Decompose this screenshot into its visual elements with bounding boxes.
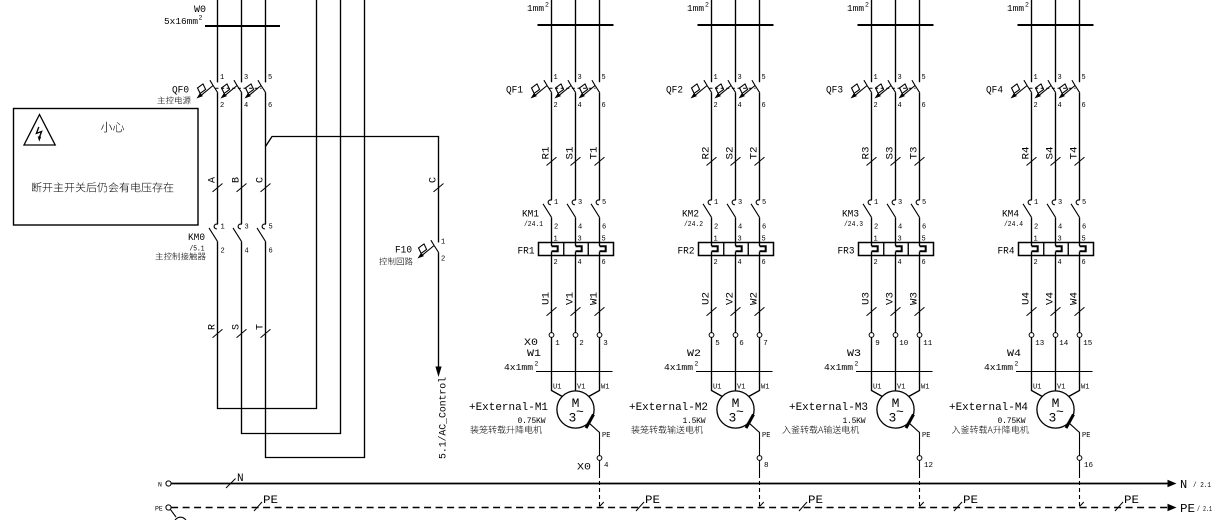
svg-text:V1: V1 [897,384,905,392]
svg-text:1: 1 [874,235,878,243]
svg-text:PE: PE [1124,495,1139,507]
svg-text:4x1mm: 4x1mm [824,362,853,373]
svg-text:PE: PE [1082,432,1090,440]
svg-text:2: 2 [1034,102,1038,110]
svg-text:1: 1 [441,239,445,247]
svg-text:3: 3 [1058,74,1062,82]
svg-text:4: 4 [578,223,582,231]
svg-text:+External-M2: +External-M2 [629,402,708,414]
svg-text:FR1: FR1 [518,246,535,258]
svg-text:1: 1 [1034,199,1038,207]
svg-text:2: 2 [579,340,584,348]
svg-text:QF1: QF1 [506,85,523,97]
svg-text:1: 1 [714,199,718,207]
svg-text:4x1mm: 4x1mm [504,362,533,373]
svg-text:1mm: 1mm [1007,3,1024,14]
svg-text:12: 12 [924,462,933,470]
svg-text:PE: PE [963,495,978,507]
svg-text:5x16mm: 5x16mm [164,16,198,27]
svg-text:5: 5 [762,235,766,243]
svg-text:5: 5 [762,199,766,207]
svg-text:7: 7 [763,340,768,348]
svg-text:3: 3 [738,235,742,243]
svg-text:3: 3 [738,199,742,207]
svg-text:4: 4 [1058,259,1062,267]
svg-text:QF3: QF3 [826,85,843,97]
svg-text:3: 3 [578,74,582,82]
svg-text:5: 5 [922,199,926,207]
svg-text:V3: V3 [886,292,897,305]
svg-text:2: 2 [1034,223,1038,231]
svg-text:W3: W3 [847,349,861,360]
svg-text:5: 5 [269,224,273,232]
svg-text:3: 3 [245,224,249,232]
svg-text:U2: U2 [702,292,713,305]
svg-text:2: 2 [221,248,225,256]
svg-text:~: ~ [576,405,584,420]
svg-text:4: 4 [244,102,248,110]
svg-text:U4: U4 [1022,292,1033,305]
svg-text:W1: W1 [921,384,929,392]
svg-text:2: 2 [545,2,549,9]
svg-text:10: 10 [899,340,909,348]
svg-text:N: N [158,482,162,489]
svg-text:5: 5 [602,199,606,207]
svg-text:5: 5 [922,74,926,82]
svg-text:N: N [237,473,244,485]
svg-text:R: R [208,324,219,330]
svg-text:4: 4 [1058,102,1062,110]
svg-text:/ 2.1: / 2.1 [1193,482,1211,490]
svg-text:V1: V1 [1057,384,1065,392]
svg-text:+External-M1: +External-M1 [469,402,548,414]
svg-text:6: 6 [602,223,606,231]
svg-text:2: 2 [695,361,699,368]
svg-text:V1: V1 [577,384,585,392]
svg-text:2: 2 [714,259,718,267]
svg-text:2: 2 [865,2,869,9]
svg-text:1: 1 [874,74,878,82]
svg-text:1: 1 [554,199,558,207]
svg-text:6: 6 [762,259,766,267]
svg-text:2: 2 [220,102,224,110]
svg-text:~: ~ [736,405,744,420]
svg-text:X0: X0 [577,463,591,474]
svg-text:KM2: KM2 [682,209,699,221]
svg-text:1mm: 1mm [527,3,544,14]
svg-text:3: 3 [578,235,582,243]
svg-text:6: 6 [739,340,744,348]
svg-text:FR3: FR3 [838,246,855,258]
svg-text:5: 5 [715,340,720,348]
svg-text:2: 2 [1015,361,1019,368]
svg-text:T3: T3 [910,147,921,160]
svg-text:1.5KW: 1.5KW [843,417,866,426]
svg-text:QF0: QF0 [172,85,189,97]
svg-text:11: 11 [923,340,933,348]
svg-text:S1: S1 [566,147,577,160]
svg-text:3: 3 [244,74,248,82]
svg-text:2: 2 [554,259,558,267]
svg-text:V4: V4 [1046,292,1057,305]
svg-text:6: 6 [269,248,273,256]
svg-text:+External-M4: +External-M4 [949,402,1028,414]
svg-text:3: 3 [898,199,902,207]
svg-text:16: 16 [1084,462,1094,470]
svg-text:R3: R3 [862,147,873,160]
svg-text:T4: T4 [1070,147,1081,160]
svg-text:6: 6 [268,102,272,110]
svg-text:W2: W2 [750,292,761,305]
svg-text:1: 1 [555,340,560,348]
svg-text:6: 6 [762,102,766,110]
svg-text:W1: W1 [527,349,541,360]
svg-text:R1: R1 [542,147,553,160]
svg-text:W1: W1 [761,384,769,392]
svg-text:PE: PE [1180,502,1195,516]
svg-text:T1: T1 [590,147,601,160]
svg-text:2: 2 [441,256,445,264]
svg-text:S4: S4 [1046,147,1057,160]
svg-text:T: T [256,324,267,330]
svg-text:1: 1 [554,74,558,82]
svg-text:5: 5 [922,235,926,243]
svg-text:4x1mm: 4x1mm [664,362,693,373]
svg-text:2: 2 [1034,259,1038,267]
svg-text:W1: W1 [1081,384,1089,392]
svg-text:4: 4 [898,102,902,110]
svg-text:S3: S3 [886,147,897,160]
svg-text:PE: PE [645,495,660,507]
svg-text:5.1/AC_Control: 5.1/AC_Control [438,377,450,459]
svg-text:U1: U1 [542,292,553,305]
svg-text:1mm: 1mm [847,3,864,14]
svg-text:PE: PE [922,432,930,440]
svg-text:8: 8 [764,462,769,470]
svg-text:2: 2 [855,361,859,368]
svg-text:1: 1 [554,235,558,243]
svg-text:X0: X0 [524,338,538,349]
svg-text:6: 6 [602,102,606,110]
svg-text:9: 9 [875,340,880,348]
svg-text:3: 3 [603,340,608,348]
svg-text:QF4: QF4 [986,85,1003,97]
svg-text:N: N [1180,478,1187,492]
svg-text:V1: V1 [737,384,745,392]
svg-text:4: 4 [898,223,902,231]
svg-text:KM1: KM1 [522,209,539,221]
svg-text:/5.1: /5.1 [190,246,205,254]
svg-text:6: 6 [922,259,926,267]
svg-text:W4: W4 [1007,349,1021,360]
svg-text:2: 2 [535,361,539,368]
svg-text:6: 6 [762,223,766,231]
svg-text:4: 4 [738,223,742,231]
svg-text:5: 5 [268,74,272,82]
svg-text:1: 1 [714,235,718,243]
svg-text:2: 2 [874,223,878,231]
svg-text:5: 5 [762,74,766,82]
svg-text:W1: W1 [601,384,609,392]
svg-text:4x1mm: 4x1mm [984,362,1013,373]
svg-text:QF2: QF2 [666,85,683,97]
svg-text:W2: W2 [687,349,701,360]
svg-text:C: C [256,177,267,183]
svg-text:W1: W1 [590,292,601,305]
svg-text:1: 1 [1034,74,1038,82]
svg-text:/24.1: /24.1 [524,221,543,229]
svg-text:5: 5 [1082,235,1086,243]
svg-text:2: 2 [705,2,709,9]
svg-text:/24.3: /24.3 [844,221,863,229]
svg-text:1: 1 [220,74,224,82]
svg-text:6: 6 [922,223,926,231]
svg-text:S2: S2 [726,147,737,160]
svg-text:KM4: KM4 [1002,209,1019,221]
svg-text:4: 4 [898,259,902,267]
svg-text:2: 2 [874,259,878,267]
svg-text:V2: V2 [726,292,737,305]
svg-text:1mm: 1mm [687,3,704,14]
svg-text:15: 15 [1083,340,1093,348]
svg-text:2: 2 [554,223,558,231]
svg-text:PE: PE [263,495,278,507]
svg-text:2: 2 [199,15,203,22]
svg-text:~: ~ [896,405,904,420]
svg-text:1: 1 [714,74,718,82]
svg-text:PE: PE [602,432,610,440]
svg-text:KM0: KM0 [188,232,205,244]
svg-text:5: 5 [1082,74,1086,82]
svg-text:4: 4 [604,462,609,470]
svg-text:2: 2 [714,102,718,110]
svg-text:1: 1 [221,224,225,232]
svg-text:/24.2: /24.2 [684,221,703,229]
svg-text:PE: PE [762,432,770,440]
svg-text:0.75KW: 0.75KW [998,417,1026,426]
svg-text:5: 5 [602,74,606,82]
svg-text:5: 5 [602,235,606,243]
svg-text:C: C [429,177,440,183]
svg-text:R4: R4 [1022,147,1033,160]
svg-text:1: 1 [1034,235,1038,243]
svg-text:3: 3 [738,74,742,82]
svg-text:3: 3 [1058,199,1062,207]
svg-text:A: A [208,177,219,183]
svg-text:2: 2 [1025,2,1029,9]
svg-text:T2: T2 [750,147,761,160]
svg-text:2: 2 [554,102,558,110]
svg-text:5: 5 [1082,199,1086,207]
svg-text:U1: U1 [1033,384,1041,392]
svg-text:U1: U1 [713,384,721,392]
svg-text:U3: U3 [862,292,873,305]
svg-text:6: 6 [922,102,926,110]
svg-text:R2: R2 [702,147,713,160]
svg-text:/24.4: /24.4 [1004,221,1023,229]
svg-text:S: S [232,324,243,330]
svg-text:3: 3 [578,199,582,207]
svg-text:~: ~ [1056,405,1064,420]
svg-text:4: 4 [1058,223,1062,231]
svg-text:6: 6 [1082,259,1086,267]
svg-text:13: 13 [1035,340,1045,348]
svg-text:+External-M3: +External-M3 [789,402,868,414]
svg-text:1: 1 [874,199,878,207]
svg-text:4: 4 [578,259,582,267]
svg-text:4: 4 [245,248,249,256]
svg-text:F10: F10 [395,245,412,257]
svg-text:6: 6 [602,259,606,267]
svg-text:FR2: FR2 [678,246,695,258]
svg-text:B: B [232,177,243,183]
svg-text:V1: V1 [566,292,577,305]
svg-text:U1: U1 [553,384,561,392]
svg-text:/ 2.1: / 2.1 [1197,506,1212,514]
svg-text:6: 6 [1082,102,1086,110]
svg-text:1.5KW: 1.5KW [683,417,706,426]
svg-text:6: 6 [1082,223,1086,231]
svg-text:3: 3 [898,74,902,82]
svg-text:PE: PE [808,495,823,507]
svg-text:W4: W4 [1070,292,1081,305]
svg-text:U1: U1 [873,384,881,392]
svg-text:4: 4 [578,102,582,110]
svg-text:KM3: KM3 [842,209,859,221]
svg-text:4: 4 [738,102,742,110]
svg-text:14: 14 [1059,340,1069,348]
svg-text:3: 3 [898,235,902,243]
svg-text:FR4: FR4 [998,246,1015,258]
svg-text:0.75KW: 0.75KW [518,417,546,426]
svg-text:2: 2 [714,223,718,231]
svg-text:W3: W3 [910,292,921,305]
svg-text:3: 3 [1058,235,1062,243]
svg-text:PE: PE [155,506,163,513]
svg-text:4: 4 [738,259,742,267]
svg-text:2: 2 [874,102,878,110]
